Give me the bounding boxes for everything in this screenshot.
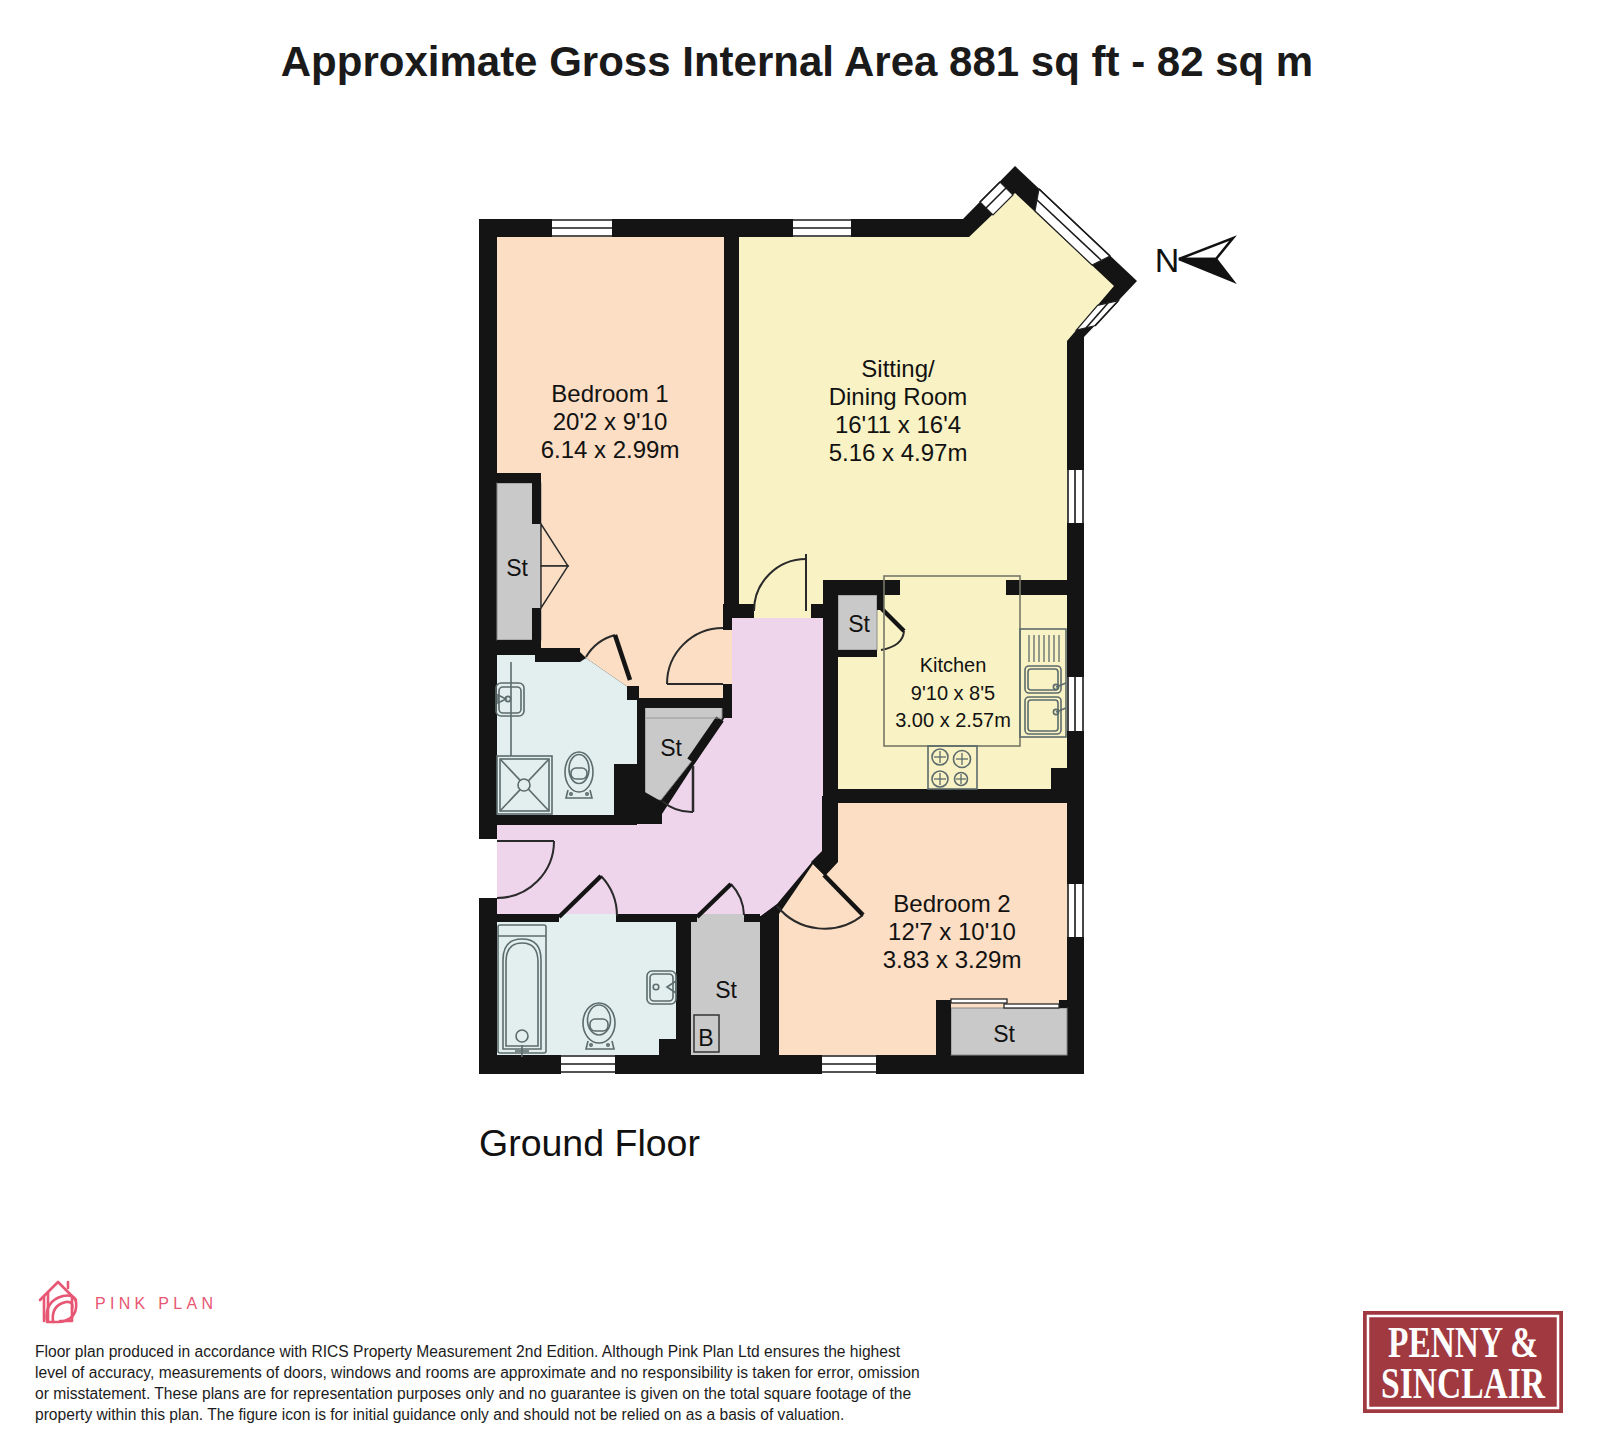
svg-text:16'11 x 16'4: 16'11 x 16'4 — [835, 411, 961, 438]
svg-text:3.00 x 2.57m: 3.00 x 2.57m — [895, 709, 1011, 731]
svg-text:St: St — [506, 555, 528, 581]
svg-text:12'7 x 10'10: 12'7 x 10'10 — [888, 918, 1016, 945]
svg-text:Floor plan produced in accorda: Floor plan produced in accordance with R… — [35, 1343, 901, 1360]
svg-text:or misstatement. These plans a: or misstatement. These plans are for rep… — [35, 1385, 911, 1402]
svg-text:Kitchen: Kitchen — [920, 654, 987, 676]
svg-text:PINK PLAN: PINK PLAN — [95, 1295, 217, 1312]
svg-text:Ground Floor: Ground Floor — [479, 1122, 700, 1164]
svg-text:20'2 x 9'10: 20'2 x 9'10 — [553, 408, 668, 435]
svg-text:N: N — [1155, 241, 1180, 279]
svg-text:5.16 x 4.97m: 5.16 x 4.97m — [829, 439, 968, 466]
svg-text:Approximate Gross Internal Are: Approximate Gross Internal Area 881 sq f… — [281, 38, 1313, 85]
svg-text:SINCLAIR: SINCLAIR — [1381, 1359, 1546, 1408]
svg-text:St: St — [660, 735, 682, 761]
svg-text:Sitting/: Sitting/ — [861, 355, 935, 382]
svg-text:6.14 x 2.99m: 6.14 x 2.99m — [541, 436, 680, 463]
svg-text:Bedroom 2: Bedroom 2 — [893, 890, 1010, 917]
svg-text:Dining Room: Dining Room — [829, 383, 968, 410]
svg-text:9'10 x 8'5: 9'10 x 8'5 — [911, 682, 995, 704]
svg-text:St: St — [848, 611, 870, 637]
svg-text:St: St — [993, 1021, 1015, 1047]
svg-text:St: St — [715, 977, 737, 1003]
svg-text:property within this plan. The: property within this plan. The figure ic… — [35, 1406, 844, 1423]
svg-text:Bedroom 1: Bedroom 1 — [551, 380, 668, 407]
svg-text:3.83 x 3.29m: 3.83 x 3.29m — [883, 946, 1022, 973]
svg-text:level of accuracy, measurement: level of accuracy, measurements of doors… — [35, 1364, 920, 1381]
svg-text:B: B — [698, 1025, 713, 1051]
